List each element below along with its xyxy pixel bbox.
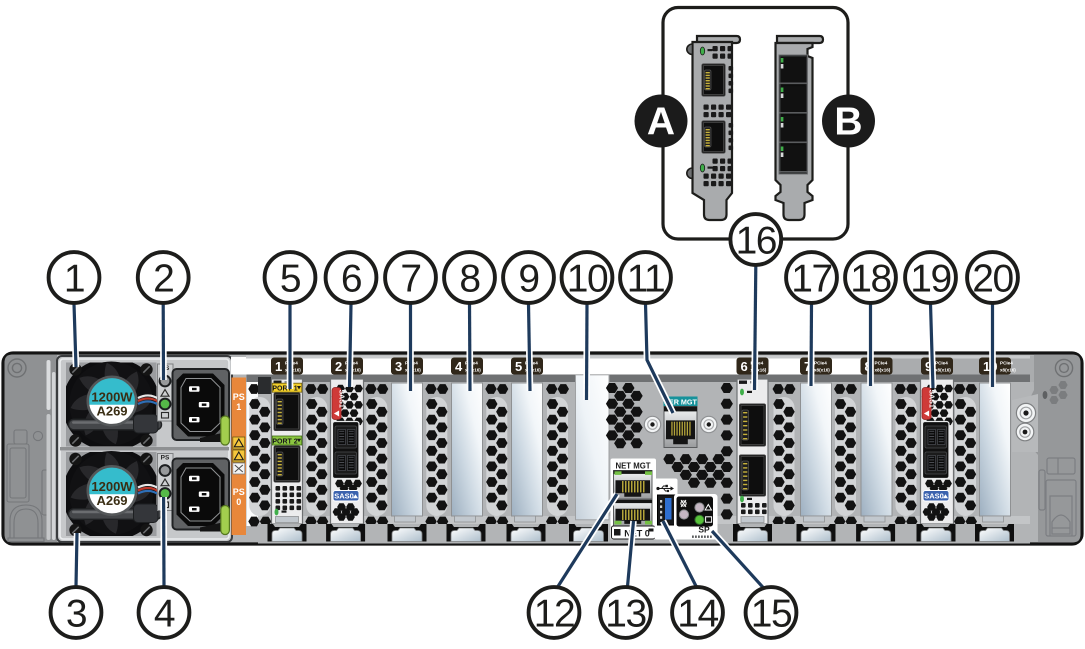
svg-text:x8(x16): x8(x16) xyxy=(935,368,951,373)
svg-text:3: 3 xyxy=(66,593,86,636)
svg-text:0: 0 xyxy=(236,497,241,507)
svg-text:1: 1 xyxy=(64,258,84,301)
svg-text:1: 1 xyxy=(236,402,241,412)
svg-text:PCIe4: PCIe4 xyxy=(935,361,948,366)
svg-text:PS: PS xyxy=(161,455,170,462)
svg-text:17: 17 xyxy=(791,258,831,301)
svg-text:19: 19 xyxy=(910,258,950,301)
svg-text:PORT 1: PORT 1 xyxy=(272,386,297,393)
svg-text:10: 10 xyxy=(567,258,608,301)
svg-text:x8(x16): x8(x16) xyxy=(814,368,830,373)
svg-text:x8(x16): x8(x16) xyxy=(875,368,891,373)
svg-text:5: 5 xyxy=(515,359,522,374)
svg-text:5: 5 xyxy=(280,258,301,301)
svg-text:PCIe4: PCIe4 xyxy=(814,361,827,366)
svg-text:1200W: 1200W xyxy=(91,479,133,494)
svg-text:14: 14 xyxy=(677,593,718,636)
svg-text:8: 8 xyxy=(459,258,479,301)
svg-text:20: 20 xyxy=(972,258,1013,301)
svg-text:PORT 2: PORT 2 xyxy=(272,438,297,445)
svg-text:2: 2 xyxy=(335,359,342,374)
svg-text:SAS0: SAS0 xyxy=(334,492,354,501)
svg-text:PS: PS xyxy=(233,392,245,402)
svg-text:NET MGT: NET MGT xyxy=(615,462,650,471)
svg-text:4: 4 xyxy=(455,359,463,374)
svg-text:SP: SP xyxy=(698,525,710,535)
svg-text:1200W: 1200W xyxy=(91,389,133,404)
svg-text:2: 2 xyxy=(153,258,173,301)
svg-text:16: 16 xyxy=(736,220,776,263)
svg-text:PCIe4: PCIe4 xyxy=(1000,361,1013,366)
svg-text:A269: A269 xyxy=(96,403,127,418)
svg-text:3: 3 xyxy=(395,359,402,374)
svg-text:7: 7 xyxy=(400,258,420,301)
svg-text:12: 12 xyxy=(534,593,574,636)
svg-text:4: 4 xyxy=(154,593,175,636)
svg-text:6: 6 xyxy=(341,258,361,301)
svg-text:SAS0: SAS0 xyxy=(924,492,944,501)
svg-text:15: 15 xyxy=(751,593,792,636)
svg-text:SAS1: SAS1 xyxy=(928,390,935,408)
svg-text:18: 18 xyxy=(850,258,890,301)
svg-text:SAS1: SAS1 xyxy=(338,390,345,408)
svg-text:1: 1 xyxy=(275,359,282,374)
svg-text:11: 11 xyxy=(627,258,665,301)
svg-text:NET 0: NET 0 xyxy=(624,529,650,539)
svg-text:A269: A269 xyxy=(96,493,127,508)
svg-text:x8(x16): x8(x16) xyxy=(1000,368,1016,373)
svg-text:9: 9 xyxy=(518,258,538,301)
svg-text:13: 13 xyxy=(605,593,645,636)
svg-text:B: B xyxy=(834,101,862,144)
svg-text:A: A xyxy=(647,101,675,144)
svg-text:PCIe4: PCIe4 xyxy=(875,361,888,366)
svg-text:PS: PS xyxy=(233,487,245,497)
svg-text:6: 6 xyxy=(741,359,748,374)
